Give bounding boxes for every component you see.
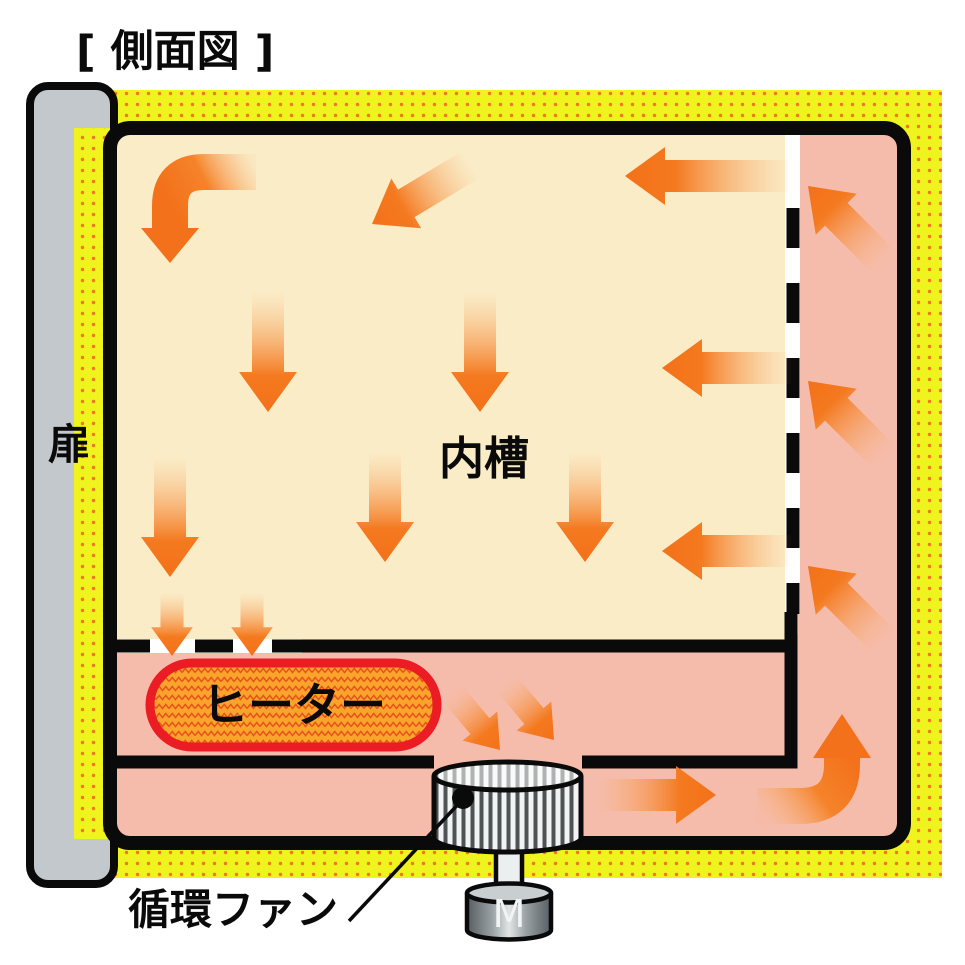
circulation-fan-label: 循環ファン (128, 885, 338, 934)
motor-label: M (493, 892, 526, 936)
plenum-right-wall (785, 612, 798, 768)
inner-chamber-label: 内槽 (439, 432, 529, 485)
heater-label: ヒーター (202, 678, 386, 732)
door-label: 扉 (48, 420, 90, 469)
oven-airflow-svg: [ 側面図 ] 扉 ヒーター (0, 0, 965, 965)
fan-callout-dot (452, 787, 474, 809)
side-view-diagram: [ 側面図 ] 扉 ヒーター (0, 0, 965, 965)
diagram-title: [ 側面図 ] (76, 27, 274, 77)
plenum-floor-right (582, 756, 798, 769)
fan-drum-top-highlight (438, 765, 578, 788)
chamber-floor-line (110, 640, 788, 653)
plenum-floor-left (110, 756, 434, 769)
